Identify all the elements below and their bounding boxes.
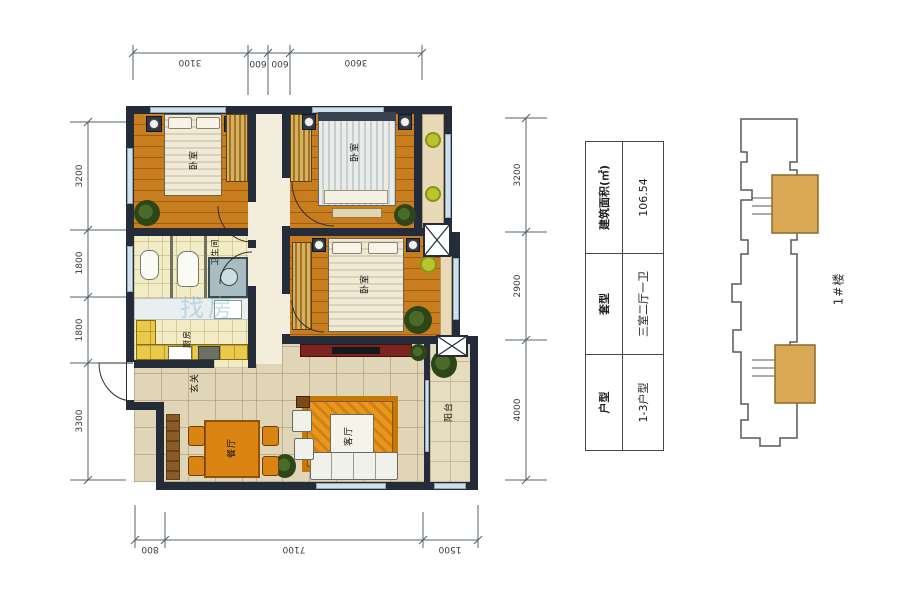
dimension-label: 1800	[75, 319, 85, 342]
unit-info-table: 户型 套型 建筑面积(㎡) 1-3户型 三室二厅一卫 106.54	[585, 141, 664, 451]
dim-bottom	[131, 505, 482, 548]
dim-right	[505, 114, 547, 484]
room-label-bedroom1: 卧室	[187, 150, 200, 170]
info-header: 户型	[586, 355, 623, 451]
info-value: 106.54	[623, 142, 664, 254]
keyplan-highlighted-units	[772, 175, 818, 403]
dimension-label: 3200	[75, 165, 85, 188]
watermark-text: 找房	[180, 288, 236, 323]
room-label-bathroom: 卫生间	[210, 239, 221, 266]
floorplan-sheet: 3100 600 600 3600 800 7100 1500 3200 180…	[0, 0, 900, 600]
dimension-label: 1500	[439, 544, 462, 554]
info-value: 1-3户型	[623, 355, 664, 451]
info-header: 套型	[586, 254, 623, 355]
flue-shafts	[424, 224, 467, 356]
info-header: 建筑面积(㎡)	[586, 142, 623, 254]
room-label-balcony: 阳台	[442, 402, 455, 422]
dimension-label: 600	[249, 58, 266, 68]
dimension-label: 2900	[513, 275, 523, 298]
dimension-label: 7100	[283, 544, 306, 554]
keyplan-label: 1#楼	[830, 273, 847, 306]
dimension-label: 3300	[75, 410, 85, 433]
room-label-bedroom2: 卧室	[348, 142, 361, 162]
room-label-dining: 餐厅	[225, 438, 238, 458]
room-label-kitchen: 厨房	[182, 330, 193, 348]
dimension-label: 4000	[513, 399, 523, 422]
room-label-entry: 玄关	[188, 373, 201, 393]
info-value: 三室二厅一卫	[623, 254, 664, 355]
dimension-label: 3100	[179, 57, 202, 67]
dimension-label: 3600	[345, 57, 368, 67]
dimension-label: 1800	[75, 252, 85, 275]
dim-top	[129, 45, 426, 95]
dimension-label: 3200	[513, 164, 523, 187]
room-label-bedroom3: 卧室	[358, 274, 371, 294]
dimension-lines	[0, 0, 900, 600]
dimension-label: 600	[271, 58, 288, 68]
room-label-living: 客厅	[342, 426, 355, 446]
dimension-label: 800	[141, 544, 158, 554]
